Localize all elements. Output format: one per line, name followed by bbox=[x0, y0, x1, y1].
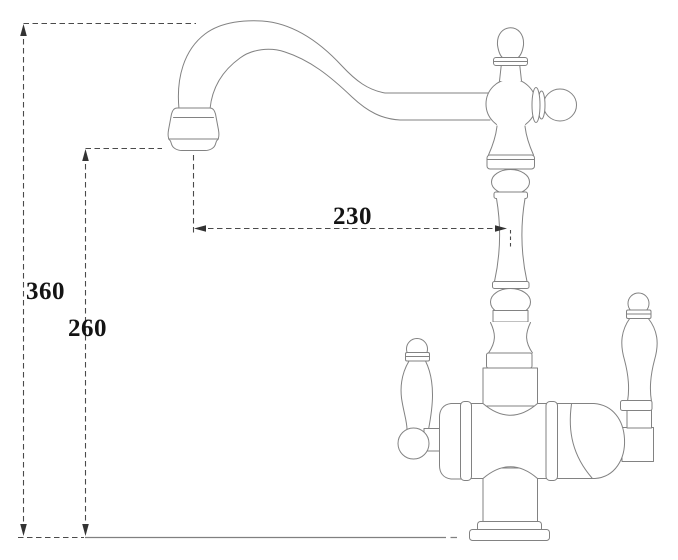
top-junction bbox=[486, 28, 577, 129]
mounting-base bbox=[470, 522, 550, 541]
faucet-technical-drawing bbox=[0, 0, 678, 560]
arrow-down-260 bbox=[82, 524, 89, 536]
spout-nozzle bbox=[168, 108, 219, 151]
faucet-outline-group bbox=[168, 21, 657, 541]
spout-arc bbox=[178, 21, 490, 120]
arrow-down-360 bbox=[20, 524, 27, 536]
left-handle bbox=[398, 339, 443, 460]
spout-column bbox=[483, 124, 538, 406]
right-handle bbox=[621, 293, 658, 462]
arrow-up-360 bbox=[20, 24, 27, 36]
dimension-label-overall-height: 360 bbox=[26, 279, 65, 304]
diverter-knob bbox=[544, 89, 577, 121]
base-column bbox=[483, 468, 538, 523]
dimension-label-spout-reach: 230 bbox=[333, 204, 372, 229]
finial bbox=[497, 28, 523, 59]
dimension-label-spout-height: 260 bbox=[68, 316, 107, 341]
valve-body bbox=[440, 402, 625, 481]
technical-drawing-canvas: 360 260 230 bbox=[0, 0, 678, 560]
arrow-up-260 bbox=[82, 149, 89, 161]
arrow-left-230 bbox=[194, 225, 206, 231]
